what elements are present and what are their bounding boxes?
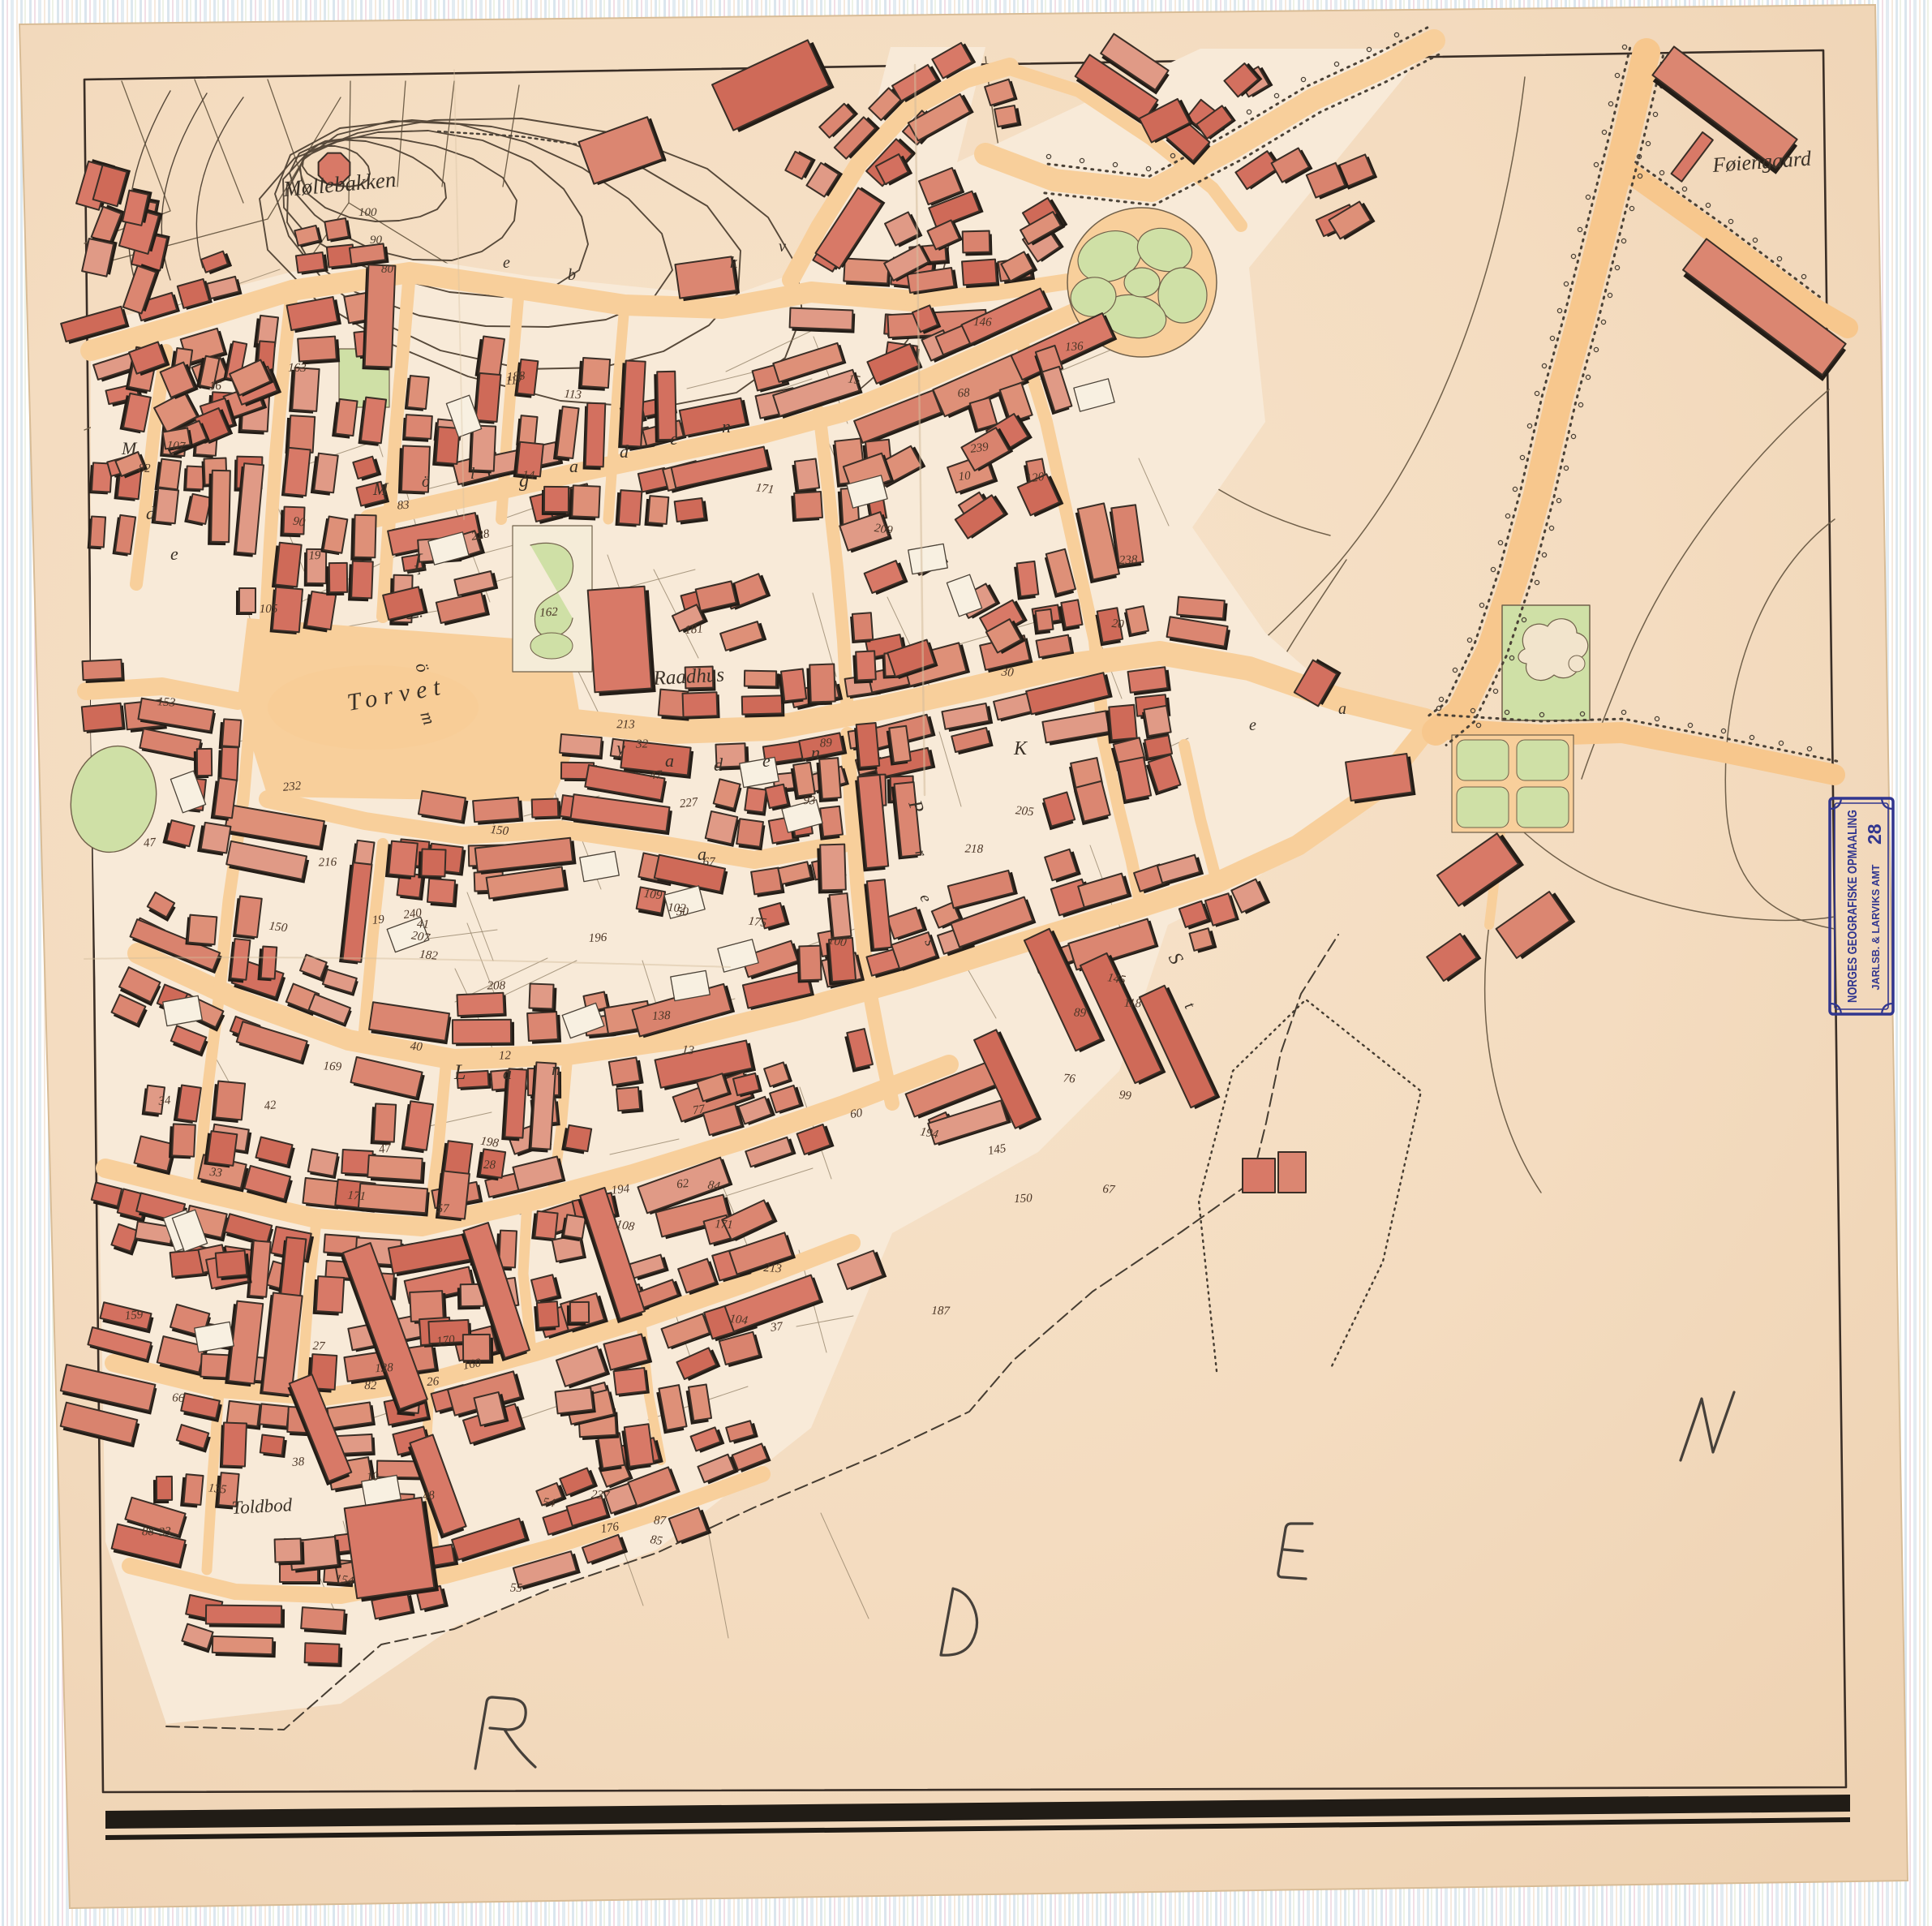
- svg-text:100: 100: [358, 206, 377, 219]
- svg-text:14: 14: [522, 469, 535, 483]
- svg-text:K: K: [1013, 738, 1028, 759]
- svg-text:82: 82: [364, 1379, 377, 1392]
- svg-text:y: y: [615, 738, 625, 759]
- svg-text:NORGES GEOGRAFISKE OPMAALING: NORGES GEOGRAFISKE OPMAALING: [1846, 810, 1860, 1003]
- svg-text:188: 188: [506, 370, 526, 385]
- svg-text:150: 150: [268, 920, 289, 935]
- svg-text:208: 208: [487, 979, 505, 992]
- svg-text:47: 47: [143, 836, 157, 850]
- svg-text:33: 33: [157, 1525, 172, 1540]
- svg-text:d: d: [620, 441, 629, 462]
- svg-text:150: 150: [1014, 1192, 1033, 1206]
- svg-text:218: 218: [964, 843, 983, 857]
- svg-text:e: e: [170, 544, 178, 564]
- svg-text:90: 90: [292, 515, 307, 530]
- svg-text:15: 15: [847, 372, 861, 387]
- svg-text:80: 80: [381, 263, 394, 276]
- svg-text:12: 12: [499, 1049, 512, 1062]
- svg-text:83: 83: [397, 499, 410, 513]
- svg-text:213: 213: [763, 1262, 783, 1275]
- svg-text:84: 84: [707, 1179, 722, 1193]
- svg-text:82: 82: [138, 462, 151, 475]
- svg-text:159: 159: [124, 1309, 144, 1323]
- svg-text:113: 113: [564, 388, 582, 402]
- svg-text:90: 90: [370, 234, 383, 247]
- svg-text:153: 153: [157, 695, 176, 710]
- svg-text:L: L: [453, 1060, 466, 1084]
- svg-text:105: 105: [260, 603, 278, 616]
- svg-text:171: 171: [715, 1218, 733, 1232]
- svg-text:182: 182: [419, 948, 439, 963]
- svg-text:42: 42: [264, 1098, 277, 1113]
- svg-text:76: 76: [1063, 1072, 1076, 1086]
- svg-text:19: 19: [371, 914, 385, 927]
- svg-text:a: a: [1338, 700, 1346, 718]
- svg-text:b: b: [568, 266, 576, 284]
- svg-text:162: 162: [539, 606, 559, 620]
- svg-text:48: 48: [422, 1489, 436, 1503]
- svg-text:28: 28: [483, 1159, 496, 1172]
- svg-text:28: 28: [1864, 823, 1885, 845]
- svg-text:146: 146: [973, 316, 992, 329]
- svg-text:k: k: [730, 254, 738, 272]
- svg-text:13: 13: [681, 1043, 694, 1057]
- svg-text:e: e: [762, 750, 771, 771]
- svg-text:181: 181: [685, 622, 704, 637]
- svg-text:89: 89: [819, 737, 832, 750]
- svg-text:a: a: [665, 750, 674, 771]
- svg-text:a: a: [569, 456, 578, 476]
- svg-text:e: e: [503, 254, 510, 272]
- svg-text:138: 138: [652, 1009, 672, 1023]
- svg-text:d: d: [714, 754, 723, 775]
- svg-text:68: 68: [957, 386, 971, 400]
- svg-text:10: 10: [958, 470, 972, 484]
- svg-text:55: 55: [510, 1581, 523, 1595]
- svg-text:150: 150: [490, 823, 509, 838]
- svg-text:16: 16: [209, 380, 222, 393]
- svg-text:20: 20: [1111, 617, 1125, 631]
- svg-text:213: 213: [616, 718, 635, 731]
- svg-text:M: M: [121, 438, 138, 458]
- svg-text:e: e: [670, 428, 678, 449]
- svg-text:99: 99: [1118, 1089, 1132, 1103]
- svg-text:104: 104: [728, 1313, 749, 1328]
- svg-text:34: 34: [157, 1094, 172, 1108]
- svg-text:85: 85: [649, 1533, 663, 1548]
- svg-text:120: 120: [1025, 471, 1045, 486]
- svg-text:38: 38: [291, 1455, 305, 1469]
- svg-text:e: e: [1249, 716, 1256, 734]
- svg-text:136: 136: [1065, 340, 1084, 354]
- svg-text:66: 66: [172, 1391, 185, 1405]
- svg-text:102: 102: [668, 901, 687, 915]
- svg-text:19: 19: [308, 549, 321, 562]
- svg-text:30: 30: [1000, 666, 1015, 680]
- svg-text:26: 26: [427, 1375, 440, 1389]
- svg-text:171: 171: [347, 1189, 367, 1204]
- svg-text:87: 87: [654, 1514, 668, 1528]
- svg-text:232: 232: [282, 780, 302, 794]
- svg-text:170: 170: [436, 1333, 456, 1348]
- svg-text:107: 107: [166, 439, 187, 454]
- svg-text:n: n: [552, 1059, 560, 1079]
- svg-text:67: 67: [1102, 1183, 1117, 1197]
- svg-text:33: 33: [208, 1166, 223, 1180]
- svg-text:n: n: [811, 742, 820, 763]
- svg-text:238: 238: [1119, 553, 1139, 567]
- svg-text:d: d: [146, 503, 156, 523]
- svg-text:ö: ö: [422, 473, 430, 491]
- svg-text:v: v: [779, 238, 786, 256]
- svg-text:Toldbod: Toldbod: [231, 1494, 293, 1518]
- svg-text:M: M: [372, 479, 389, 499]
- svg-text:128: 128: [375, 1361, 394, 1375]
- svg-text:57: 57: [437, 1202, 451, 1215]
- svg-text:109: 109: [643, 888, 663, 903]
- svg-text:135: 135: [208, 1481, 228, 1496]
- svg-text:47: 47: [650, 768, 663, 782]
- svg-text:27: 27: [312, 1339, 326, 1353]
- svg-text:54: 54: [542, 1496, 556, 1511]
- svg-text:60: 60: [849, 1107, 863, 1121]
- svg-text:93: 93: [803, 794, 815, 807]
- svg-text:118: 118: [1123, 997, 1141, 1011]
- svg-text:41: 41: [417, 918, 430, 931]
- svg-text:209: 209: [874, 522, 894, 537]
- svg-text:227: 227: [679, 796, 700, 811]
- svg-text:169: 169: [323, 1060, 342, 1073]
- svg-text:32: 32: [635, 738, 649, 751]
- svg-text:JARLSB. & LARVIKS AMT: JARLSB. & LARVIKS AMT: [1870, 864, 1882, 990]
- svg-text:237: 237: [590, 1489, 611, 1503]
- svg-text:163: 163: [288, 362, 307, 375]
- svg-text:62: 62: [676, 1177, 689, 1192]
- svg-text:194: 194: [611, 1182, 631, 1197]
- svg-text:88: 88: [142, 1525, 155, 1538]
- svg-text:216: 216: [318, 856, 337, 870]
- svg-text:a: a: [503, 1063, 512, 1083]
- svg-text:239: 239: [969, 441, 990, 456]
- svg-text:175: 175: [748, 915, 768, 931]
- svg-text:40: 40: [410, 1040, 423, 1054]
- svg-text:l: l: [470, 465, 475, 483]
- svg-text:187: 187: [931, 1305, 951, 1318]
- svg-text:89: 89: [1073, 1006, 1087, 1020]
- svg-text:196: 196: [588, 931, 608, 945]
- svg-text:Raadhus: Raadhus: [652, 664, 725, 690]
- svg-text:171: 171: [755, 481, 775, 497]
- svg-text:67: 67: [703, 856, 717, 869]
- svg-text:205: 205: [1015, 804, 1035, 819]
- svg-text:10: 10: [366, 1470, 379, 1484]
- svg-text:n: n: [722, 416, 731, 436]
